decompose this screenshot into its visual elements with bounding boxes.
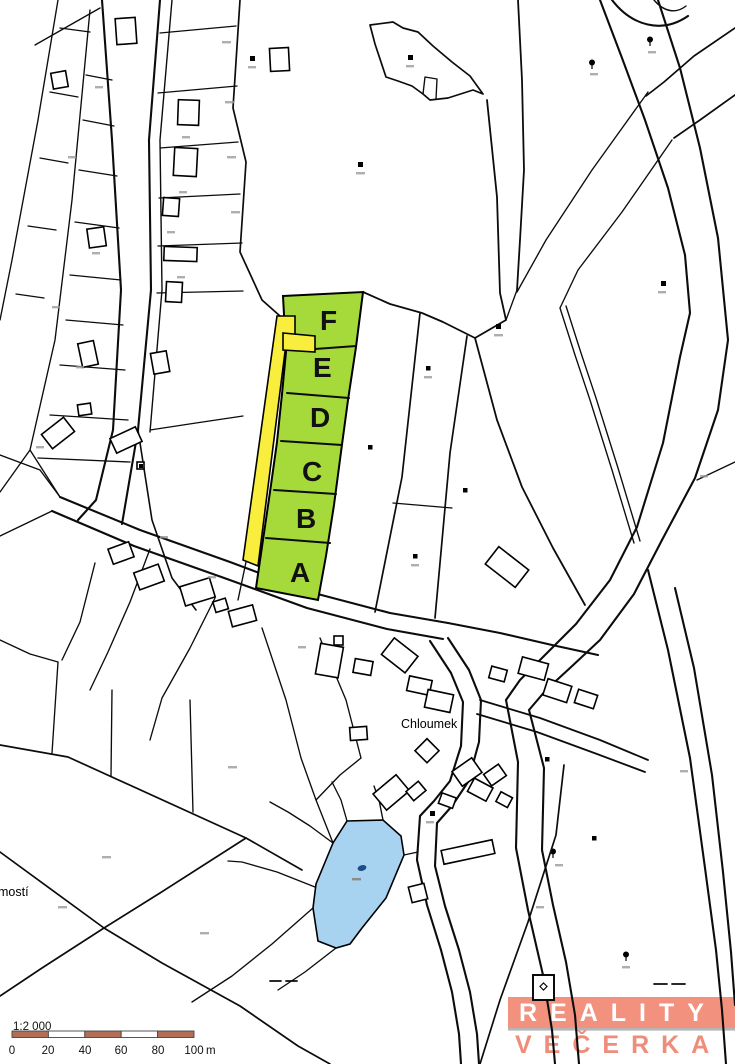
village-label: Chloumek [401, 717, 458, 731]
water-parcel-number-mark [352, 878, 361, 880]
parcel-label-f: F [320, 305, 337, 336]
scale-bar: 1:2 000 0 20 40 60 80 100 m [9, 1021, 216, 1057]
water-parcel-group [313, 820, 404, 948]
logo-line2: VEČERKA [515, 1029, 721, 1059]
scale-tick-100: 100 [184, 1045, 203, 1057]
highlighted-parcels-group [243, 292, 363, 600]
scale-segment [158, 1031, 194, 1038]
dashed-boundary-marks [270, 981, 685, 984]
scale-tick-20: 20 [42, 1045, 55, 1057]
parcel-label-d: D [310, 402, 330, 433]
edge-place-label: mostí [0, 885, 29, 899]
parcel-label-c: C [302, 456, 322, 487]
overprint-road-lines [441, 570, 735, 1064]
scale-tick-0: 0 [9, 1045, 15, 1057]
scale-tick-60: 60 [115, 1045, 128, 1057]
cadastral-map-screenshot: A B C D E F Chloumek mostí 1:2 000 0 20 … [0, 0, 735, 1064]
yellow-access-strip-arm[interactable] [283, 333, 315, 352]
scale-segment [48, 1031, 84, 1038]
scale-unit-label: m [206, 1045, 216, 1057]
scale-segment [85, 1031, 121, 1038]
parcel-label-b: B [296, 503, 316, 534]
scale-tick-40: 40 [79, 1045, 92, 1057]
scale-segment [12, 1031, 48, 1038]
road-lines [52, 0, 735, 950]
overprint-building [533, 975, 554, 1000]
parcel-label-e: E [313, 352, 332, 383]
scale-segment [121, 1031, 157, 1038]
cadastral-map-svg: A B C D E F Chloumek mostí 1:2 000 0 20 … [0, 0, 735, 1064]
tree-symbols [551, 37, 653, 961]
logo-reality-vecerka: REALITY VEČERKA [508, 997, 735, 1059]
parcel-label-a: A [290, 557, 310, 588]
scale-tick-80: 80 [152, 1045, 165, 1057]
water-parcel[interactable] [313, 820, 404, 948]
